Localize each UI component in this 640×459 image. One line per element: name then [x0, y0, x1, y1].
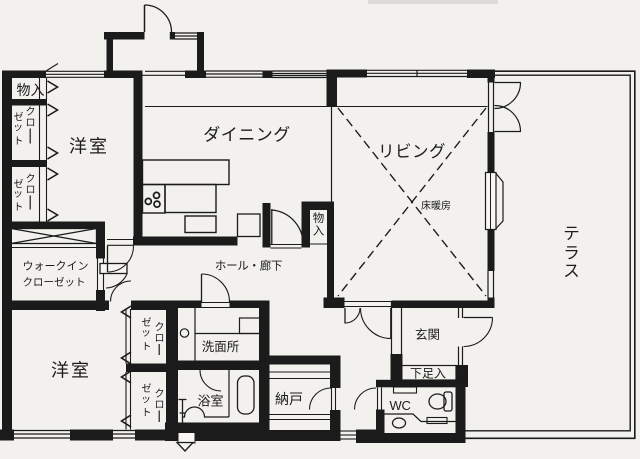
svg-text:ゼ: ゼ — [142, 383, 152, 395]
svg-text:リビング: リビング — [378, 142, 446, 161]
svg-text:ト: ト — [14, 203, 24, 214]
svg-text:洋室: 洋室 — [69, 137, 109, 157]
svg-text:ッ: ッ — [141, 328, 151, 339]
svg-text:ラ: ラ — [563, 245, 580, 263]
svg-text:ウォークイン: ウォークイン — [23, 260, 89, 273]
svg-text:クローゼット: クローゼット — [23, 277, 86, 289]
svg-text:物入: 物入 — [17, 82, 45, 98]
svg-text:ッ: ッ — [13, 123, 23, 134]
svg-text:ト: ト — [142, 408, 152, 419]
svg-text:ッ: ッ — [13, 189, 23, 200]
svg-text:玄関: 玄関 — [415, 327, 440, 342]
svg-text:納戸: 納戸 — [275, 391, 303, 407]
svg-text:ク: ク — [26, 106, 36, 118]
svg-text:ク: ク — [26, 173, 36, 185]
svg-text:入: 入 — [313, 225, 325, 238]
svg-text:テ: テ — [563, 225, 580, 243]
svg-text:ロ: ロ — [26, 185, 36, 196]
svg-text:ッ: ッ — [141, 395, 151, 406]
svg-text:下足入: 下足入 — [410, 367, 446, 381]
svg-text:ト: ト — [142, 342, 152, 353]
svg-text:ク: ク — [155, 388, 165, 400]
svg-text:物: 物 — [313, 211, 325, 225]
svg-text:ス: ス — [563, 263, 580, 281]
svg-text:浴室: 浴室 — [197, 394, 223, 409]
svg-text:ロ: ロ — [26, 118, 36, 129]
svg-text:洗面所: 洗面所 — [202, 340, 240, 354]
svg-text:ロ: ロ — [155, 334, 165, 345]
svg-text:ロ: ロ — [155, 400, 165, 411]
svg-text:ク: ク — [155, 322, 165, 334]
svg-text:WC: WC — [389, 398, 410, 413]
svg-text:ダイニング: ダイニング — [203, 126, 291, 145]
svg-text:ホール・廊下: ホール・廊下 — [215, 259, 282, 273]
svg-text:洋室: 洋室 — [51, 361, 91, 381]
svg-text:ト: ト — [14, 137, 24, 148]
svg-text:床暖房: 床暖房 — [421, 199, 451, 212]
